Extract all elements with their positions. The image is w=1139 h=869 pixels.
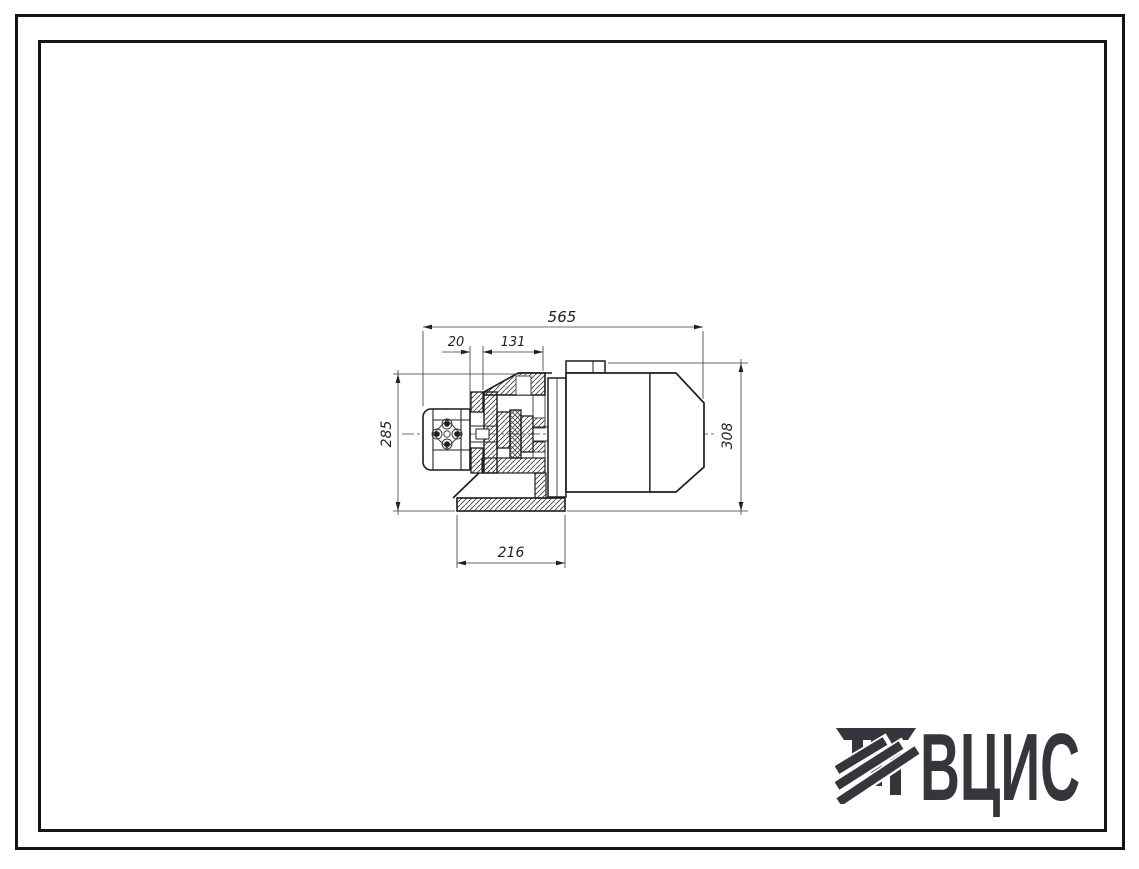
dim-bracket-length-label: 131 <box>501 335 526 350</box>
dim-motor-height-label: 308 <box>720 423 736 450</box>
drawing-sheet: 565 20 131 285 308 <box>0 0 1139 869</box>
base-plate <box>457 498 565 511</box>
motor-end-bell <box>650 373 704 492</box>
pump-flange-bottom <box>471 448 483 473</box>
pump-shaft-center <box>444 431 450 437</box>
dim-overall-length-label: 565 <box>548 308 577 326</box>
electric-motor <box>548 361 704 497</box>
dim-pump-offset-label: 20 <box>448 335 465 350</box>
dim-base-length: 216 <box>457 515 565 568</box>
logo-beam <box>836 728 916 740</box>
pump-flange-top <box>471 392 483 412</box>
gear-pump <box>423 392 483 473</box>
pump-motor-section-drawing: 565 20 131 285 308 <box>380 290 760 580</box>
vcis-logo-icon <box>835 712 927 804</box>
motor-body <box>566 373 650 492</box>
logo-text: ВЦИС <box>920 722 1080 817</box>
dim-left-height-label: 285 <box>380 421 395 448</box>
coupling-elastic-element <box>510 410 521 458</box>
vcis-logo-wordmark: ВЦИС <box>918 722 1093 817</box>
motor-terminal-box <box>566 361 605 373</box>
dim-base-length-label: 216 <box>498 545 525 561</box>
